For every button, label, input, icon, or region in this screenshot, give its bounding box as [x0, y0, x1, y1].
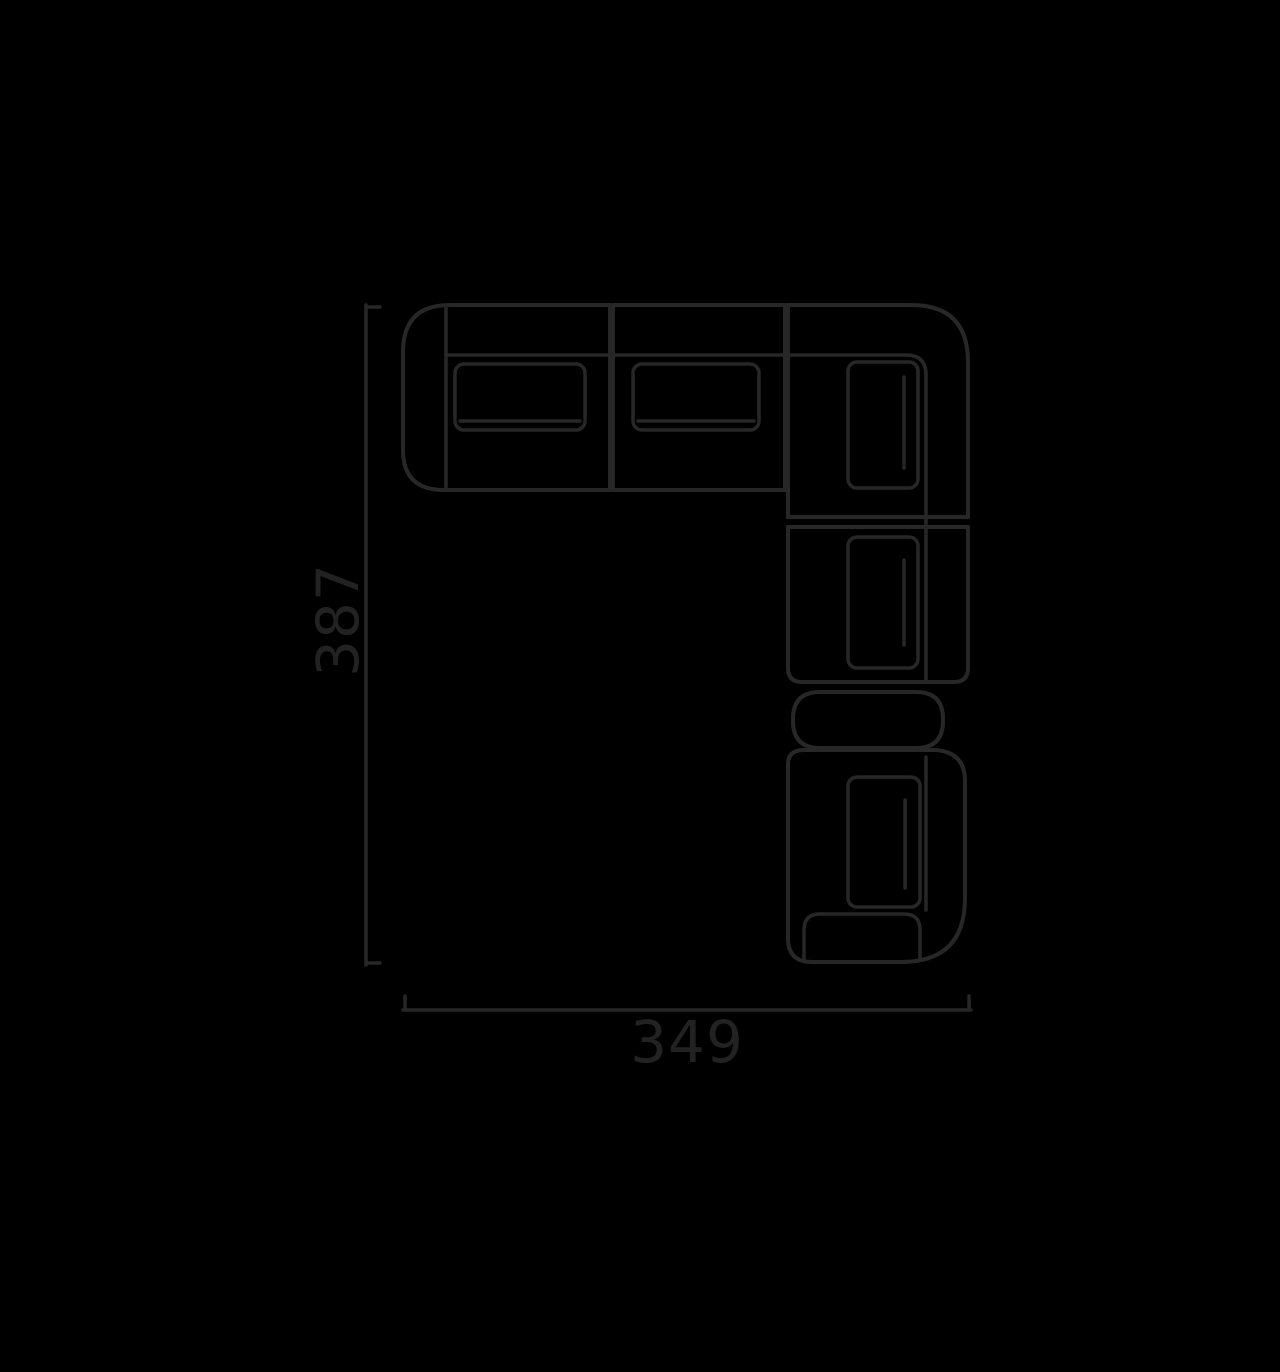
height-dimension: 387	[304, 305, 380, 965]
section-right-middle-seat	[788, 527, 968, 682]
section-left-arm-seat	[403, 305, 610, 490]
bottom-armrest-line	[804, 914, 920, 959]
seat-cushion	[848, 362, 918, 488]
sofa-floorplan-diagram: 387 349	[0, 0, 1280, 1372]
sofa-floorplan-canvas: 387 349	[0, 0, 1280, 1372]
sofa-outline	[403, 305, 968, 962]
seat-cushions	[455, 362, 920, 907]
seat-cushion	[848, 777, 920, 907]
section-right-end-seat	[788, 750, 965, 962]
sofa-inner-lines	[446, 308, 926, 959]
width-dimension: 349	[403, 996, 971, 1076]
seat-cushion	[848, 537, 918, 668]
section-corner-seat	[788, 305, 968, 517]
width-dimension-label: 349	[630, 1008, 744, 1076]
height-dimension-label: 387	[304, 563, 372, 677]
section-armless-connector	[793, 692, 943, 748]
